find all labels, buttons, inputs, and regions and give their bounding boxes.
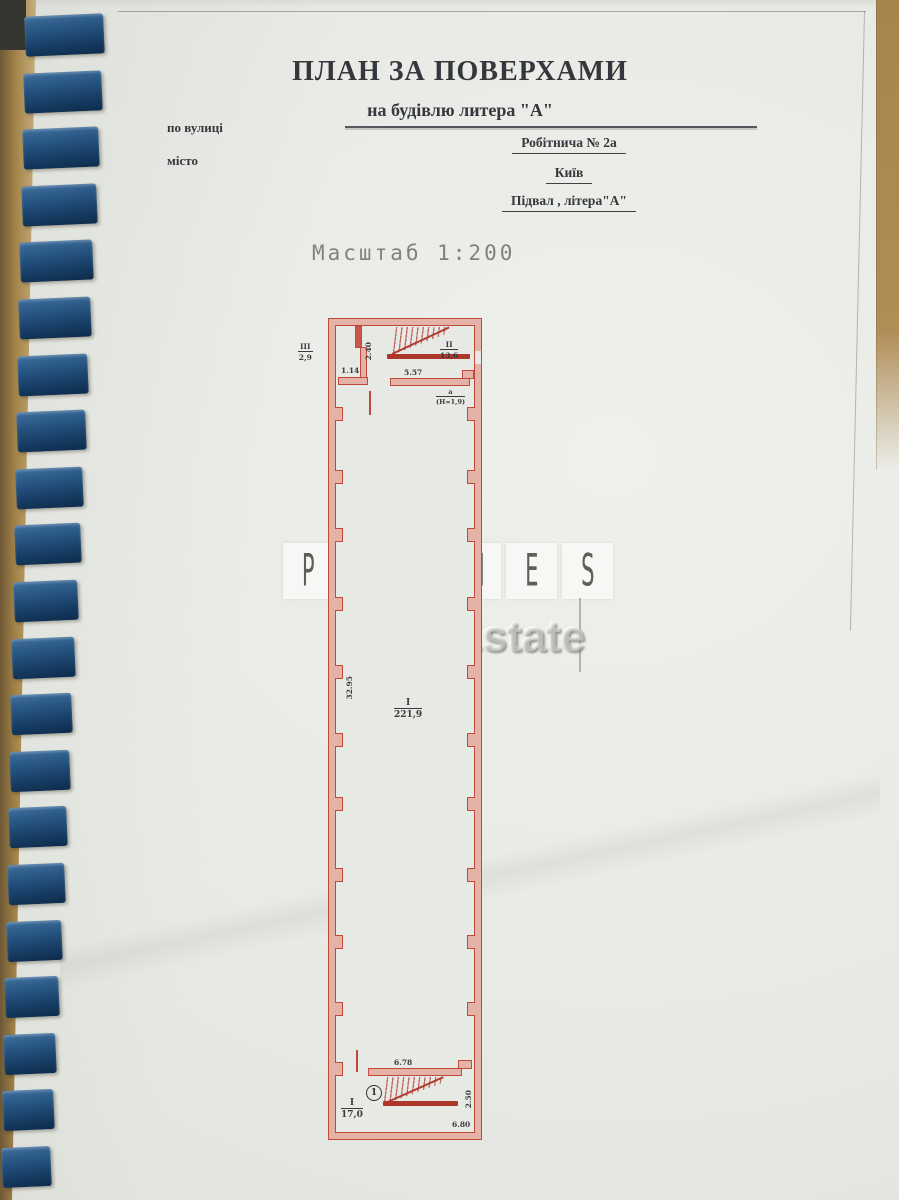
- watermark-letter-block: P: [283, 543, 334, 599]
- binding-ring: [10, 693, 73, 736]
- top-left-partition-horizontal: [338, 377, 368, 385]
- binding-ring: [3, 1033, 57, 1075]
- wall-pilaster: [467, 868, 475, 882]
- binding-ring: [14, 523, 81, 566]
- binding-ring: [1, 1146, 52, 1188]
- floor-plan: 1 1.14 2.40 5.57 32.95 6.78 2.50 6.80 II…: [328, 318, 482, 1140]
- binding-ring: [24, 13, 105, 56]
- watermark-letter: E: [525, 545, 538, 597]
- wall-pilaster: [467, 597, 475, 611]
- wall-pilaster: [467, 665, 475, 679]
- watermark-letter-block: S: [562, 543, 613, 599]
- wall-pilaster: [335, 935, 343, 949]
- room-i-number: I: [394, 698, 422, 709]
- room-i-area: 221,9: [394, 709, 422, 720]
- street-value-text: Робітнича № 2а: [512, 135, 626, 154]
- bottom-partition-jog: [458, 1060, 472, 1069]
- binding-ring: [20, 240, 95, 283]
- binding-ring: [17, 353, 89, 396]
- wall-pilaster: [467, 470, 475, 484]
- desk-surface-right: [876, 0, 899, 470]
- dim-2-50: 2.50: [464, 1090, 473, 1108]
- door-tick-bottom: [356, 1050, 358, 1072]
- room-ii-number: II: [440, 340, 458, 350]
- wall-pilaster: [335, 1002, 343, 1016]
- binding-ring: [6, 919, 63, 961]
- city-value-text: Київ: [546, 165, 593, 184]
- dim-1-14: 1.14: [341, 366, 359, 375]
- wall-pilaster: [335, 797, 343, 811]
- room-iii-number: III: [298, 342, 313, 352]
- subtitle-rule: [345, 126, 757, 128]
- binding-ring: [16, 410, 86, 453]
- level-value-text: Підвал , літера"А": [502, 193, 636, 212]
- wall-pilaster: [467, 935, 475, 949]
- binding-ring: [15, 466, 84, 509]
- wall-pilaster: [467, 407, 475, 421]
- binding-ring: [2, 1089, 54, 1131]
- page-title: ПЛАН ЗА ПОВЕРХАМИ: [160, 56, 760, 88]
- dim-6-80: 6.80: [452, 1120, 470, 1129]
- wall-pilaster: [335, 733, 343, 747]
- page-subtitle: на будівлю литера "А": [160, 100, 760, 121]
- binding-ring: [21, 183, 97, 226]
- wall-pilaster: [335, 407, 343, 421]
- watermark-letter: P: [302, 545, 315, 597]
- room-iii-area: 2,9: [298, 352, 313, 362]
- stair-bottom-landing-bar: [383, 1101, 458, 1106]
- level-value: Підвал , літера"А": [480, 193, 658, 212]
- dim-32-95: 32.95: [345, 676, 354, 700]
- room-a-number: а: [436, 388, 465, 397]
- binding-ring: [13, 580, 79, 623]
- binding-ring: [5, 976, 60, 1018]
- binding-ring: [18, 296, 91, 339]
- wall-pilaster: [335, 868, 343, 882]
- room-label-ii: II 13,6: [440, 340, 458, 360]
- wall-pilaster: [335, 665, 343, 679]
- room-label-a: а (Н=1,9): [436, 388, 465, 406]
- scale-text: Масштаб 1:200: [312, 241, 515, 265]
- stair-number-circle: 1: [366, 1085, 382, 1101]
- top-partition-jog: [462, 370, 474, 379]
- city-label: місто: [167, 153, 198, 169]
- dim-2-40: 2.40: [364, 342, 373, 360]
- room-i-stair-area: 17,0: [341, 1109, 363, 1120]
- wall-pilaster: [467, 733, 475, 747]
- wall-pilaster: [467, 1002, 475, 1016]
- page-frame-top-line: [118, 11, 866, 12]
- left-wall-opening: [335, 1062, 343, 1076]
- top-partition: [390, 378, 470, 386]
- room-label-iii: III 2,9: [298, 342, 313, 362]
- wall-pilaster: [335, 470, 343, 484]
- room-a-height: (Н=1,9): [436, 397, 465, 406]
- city-value: Київ: [480, 165, 658, 184]
- door-tick-top: [369, 391, 371, 415]
- room-label-i-stair: I 17,0: [341, 1098, 363, 1120]
- top-stub-wall: [355, 326, 362, 348]
- room-ii-area: 13,6: [440, 350, 458, 360]
- photo-background: ПЛАН ЗА ПОВЕРХАМИ на будівлю литера "А" …: [0, 0, 899, 1200]
- photo-dark-corner: [0, 0, 26, 50]
- street-value: Робітнича № 2а: [480, 135, 658, 154]
- inner-wall-line: [335, 325, 475, 1133]
- watermark-letter: S: [581, 545, 594, 597]
- bottom-partition: [368, 1068, 462, 1076]
- street-label: по вулиці: [167, 120, 223, 136]
- binding-ring: [8, 806, 68, 848]
- watermark-letter-block: E: [506, 543, 557, 599]
- dim-5-57: 5.57: [404, 368, 422, 377]
- room-label-i-main: I 221,9: [394, 698, 422, 720]
- dim-6-78: 6.78: [394, 1058, 412, 1067]
- binding-ring: [23, 70, 102, 113]
- wall-pilaster: [467, 528, 475, 542]
- wall-pilaster: [335, 528, 343, 542]
- right-wall-opening: [475, 351, 481, 364]
- binding-ring: [12, 636, 76, 679]
- binding-ring: [7, 863, 65, 905]
- room-i-stair-number: I: [341, 1098, 363, 1109]
- binding-ring: [22, 127, 100, 170]
- binding-ring: [9, 750, 70, 793]
- wall-pilaster: [335, 597, 343, 611]
- wall-pilaster: [467, 797, 475, 811]
